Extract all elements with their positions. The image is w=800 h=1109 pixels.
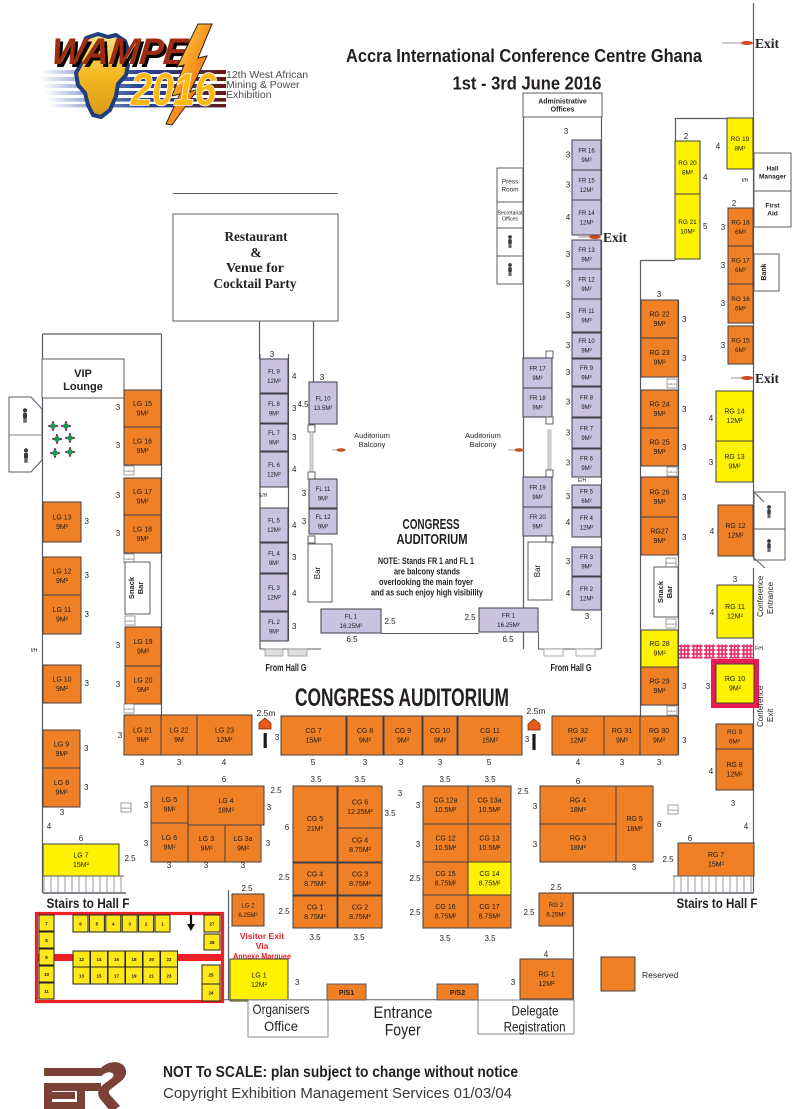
svg-text:CG 12: CG 12 — [435, 835, 455, 842]
svg-text:12M²: 12M² — [251, 982, 268, 989]
svg-text:25: 25 — [208, 973, 214, 978]
svg-text:5: 5 — [703, 222, 708, 231]
svg-text:9M²: 9M² — [237, 846, 250, 853]
svg-text:15: 15 — [96, 974, 102, 979]
svg-text:FR 14: FR 14 — [578, 211, 595, 217]
svg-text:FL 11: FL 11 — [316, 487, 331, 493]
svg-text:P/S1: P/S1 — [339, 990, 354, 997]
svg-text:LG 4: LG 4 — [218, 798, 233, 805]
svg-text:From Hall G: From Hall G — [266, 663, 307, 674]
svg-text:3: 3 — [657, 290, 662, 299]
svg-text:3: 3 — [533, 802, 538, 811]
svg-text:CG 4: CG 4 — [352, 837, 368, 844]
svg-text:3: 3 — [399, 758, 404, 767]
svg-text:9M²: 9M² — [581, 158, 591, 164]
svg-text:3: 3 — [275, 733, 280, 742]
svg-text:FR 16: FR 16 — [578, 148, 595, 154]
svg-text:VIP: VIP — [74, 368, 92, 380]
svg-text:8.75M²: 8.75M² — [479, 914, 501, 921]
svg-text:22: 22 — [166, 957, 172, 962]
svg-text:3: 3 — [116, 491, 121, 500]
svg-text:CG 5: CG 5 — [307, 816, 323, 823]
svg-text:are balcony stands: are balcony stands — [394, 567, 460, 577]
svg-text:2: 2 — [732, 199, 737, 208]
svg-text:3: 3 — [620, 758, 625, 767]
svg-text:LG 12: LG 12 — [52, 568, 71, 575]
svg-text:Snack: Snack — [127, 576, 136, 599]
svg-text:3: 3 — [566, 557, 571, 566]
svg-text:4: 4 — [576, 758, 581, 767]
svg-text:2.5: 2.5 — [409, 908, 421, 917]
svg-text:Lounge: Lounge — [63, 381, 103, 393]
svg-text:2.5: 2.5 — [662, 855, 674, 864]
svg-text:RG 23: RG 23 — [649, 350, 669, 357]
svg-text:12M²: 12M² — [580, 597, 594, 603]
svg-text:Accra International Conference: Accra International Conference Centre Gh… — [346, 45, 703, 66]
svg-text:9M²: 9M² — [55, 751, 68, 758]
svg-text:3: 3 — [167, 861, 172, 870]
svg-text:3: 3 — [682, 443, 687, 452]
svg-text:First: First — [765, 203, 780, 210]
svg-text:9M²: 9M² — [581, 376, 591, 382]
svg-text:FR 13: FR 13 — [578, 248, 595, 254]
svg-text:CONGRESS AUDITORIUM: CONGRESS AUDITORIUM — [295, 684, 509, 712]
svg-text:4: 4 — [566, 518, 571, 527]
svg-text:2.5m: 2.5m — [257, 708, 276, 718]
svg-text:RG 21: RG 21 — [678, 219, 697, 226]
svg-text:18M²: 18M² — [627, 826, 644, 833]
svg-text:3: 3 — [721, 223, 726, 232]
svg-text:LG 21: LG 21 — [133, 727, 152, 734]
svg-text:15M²: 15M² — [73, 862, 90, 869]
svg-text:LG 7: LG 7 — [73, 852, 88, 859]
svg-text:3: 3 — [721, 261, 726, 270]
svg-text:Venue for: Venue for — [226, 260, 284, 275]
svg-text:Bar: Bar — [136, 582, 145, 595]
svg-text:RG 17: RG 17 — [731, 257, 750, 264]
svg-text:Exit: Exit — [755, 36, 780, 51]
svg-text:From Hall G: From Hall G — [551, 663, 592, 674]
svg-text:17: 17 — [114, 974, 120, 979]
svg-text:and as such enjoy high visibil: and as such enjoy high visibility — [371, 588, 483, 598]
svg-text:CG 3: CG 3 — [352, 871, 368, 878]
svg-text:RG 12: RG 12 — [725, 523, 745, 530]
svg-text:RG 32: RG 32 — [568, 728, 588, 735]
svg-text:4: 4 — [710, 608, 715, 617]
svg-text:FL 12: FL 12 — [315, 515, 331, 521]
svg-text:CG 4: CG 4 — [307, 871, 323, 878]
svg-text:LG 8: LG 8 — [54, 780, 69, 787]
svg-text:3: 3 — [566, 429, 571, 438]
svg-text:10.5M²: 10.5M² — [435, 807, 457, 814]
svg-text:LG 10: LG 10 — [52, 676, 71, 683]
svg-text:9M²: 9M² — [136, 737, 149, 744]
svg-text:Exit: Exit — [755, 371, 780, 386]
svg-text:CG 13: CG 13 — [479, 835, 499, 842]
svg-text:4: 4 — [544, 950, 549, 959]
svg-text:Offices: Offices — [502, 217, 518, 223]
svg-text:3: 3 — [85, 517, 90, 526]
svg-text:21M²: 21M² — [307, 826, 324, 833]
svg-text:3: 3 — [416, 840, 421, 849]
svg-text:F/H: F/H — [755, 646, 763, 652]
svg-text:3: 3 — [363, 758, 368, 767]
svg-text:9M²: 9M² — [56, 524, 69, 531]
svg-text:LG 5: LG 5 — [162, 797, 177, 804]
svg-text:3: 3 — [706, 682, 711, 691]
svg-text:overlooking the main foyer: overlooking the main foyer — [379, 577, 473, 587]
svg-text:Organisers: Organisers — [253, 1001, 310, 1017]
svg-text:3: 3 — [733, 575, 738, 584]
svg-text:3: 3 — [566, 492, 571, 501]
svg-text:FR 4: FR 4 — [580, 516, 594, 522]
svg-text:3: 3 — [682, 682, 687, 691]
svg-text:6M²: 6M² — [735, 267, 746, 274]
svg-text:RG 1: RG 1 — [538, 971, 554, 978]
svg-text:FR 20: FR 20 — [529, 515, 546, 521]
svg-text:9M²: 9M² — [653, 651, 666, 658]
svg-text:9M²: 9M² — [532, 525, 542, 531]
svg-text:12M²: 12M² — [580, 221, 594, 227]
svg-text:3.5: 3.5 — [354, 775, 366, 784]
svg-text:RG 22: RG 22 — [649, 311, 669, 318]
svg-text:FR 12: FR 12 — [578, 277, 595, 283]
svg-text:9M²: 9M² — [581, 319, 591, 325]
svg-text:12M²: 12M² — [727, 772, 744, 779]
svg-text:Aid: Aid — [767, 211, 778, 218]
svg-text:4: 4 — [222, 758, 227, 767]
svg-text:12: 12 — [79, 957, 85, 962]
svg-text:18M²: 18M² — [570, 807, 587, 814]
svg-text:RG 25: RG 25 — [649, 439, 669, 446]
svg-text:RG27: RG27 — [650, 528, 668, 535]
svg-text:9M²: 9M² — [581, 405, 591, 411]
svg-text:3: 3 — [292, 404, 297, 413]
svg-text:RG 18: RG 18 — [731, 219, 750, 226]
svg-text:4: 4 — [566, 589, 571, 598]
svg-text:Restaurant: Restaurant — [225, 229, 288, 244]
svg-text:9M²: 9M² — [136, 411, 149, 418]
svg-text:E/H: E/H — [578, 478, 587, 484]
svg-text:10M²: 10M² — [680, 229, 695, 236]
svg-text:Bank: Bank — [761, 263, 768, 280]
svg-text:P/S2: P/S2 — [450, 990, 465, 997]
svg-text:3: 3 — [267, 803, 272, 812]
svg-text:8M²: 8M² — [734, 146, 745, 153]
svg-text:f/H: f/H — [742, 178, 749, 184]
svg-text:23: 23 — [166, 974, 172, 979]
svg-text:12M²: 12M² — [217, 737, 234, 744]
svg-text:2.5: 2.5 — [550, 883, 562, 892]
svg-text:FL 5: FL 5 — [268, 518, 280, 524]
svg-text:6.5: 6.5 — [502, 635, 514, 644]
svg-text:5: 5 — [311, 758, 316, 767]
svg-text:LG 2: LG 2 — [241, 902, 255, 909]
svg-text:FR 19: FR 19 — [529, 485, 546, 491]
svg-text:3: 3 — [566, 459, 571, 468]
svg-text:FL 1: FL 1 — [345, 613, 358, 620]
svg-text:14: 14 — [96, 957, 102, 962]
svg-text:9M²: 9M² — [653, 538, 666, 545]
svg-text:2.5: 2.5 — [270, 786, 282, 795]
svg-text:FL 9: FL 9 — [268, 369, 280, 375]
svg-text:CG 15: CG 15 — [435, 871, 455, 878]
svg-text:12M²: 12M² — [267, 528, 281, 534]
svg-text:9M²: 9M² — [581, 287, 591, 293]
svg-text:4: 4 — [566, 213, 571, 222]
svg-text:4: 4 — [716, 142, 721, 151]
svg-text:9M²: 9M² — [269, 412, 279, 418]
svg-text:E/H: E/H — [259, 493, 268, 499]
svg-text:10: 10 — [44, 972, 50, 977]
svg-text:FR 6: FR 6 — [580, 456, 594, 462]
svg-text:4: 4 — [744, 822, 749, 831]
svg-text:3: 3 — [84, 744, 89, 753]
svg-text:24: 24 — [208, 991, 214, 996]
svg-text:3: 3 — [118, 731, 123, 740]
svg-text:6M²: 6M² — [729, 739, 740, 746]
svg-text:6: 6 — [222, 775, 227, 784]
svg-text:9M²: 9M² — [318, 497, 328, 503]
svg-text:4: 4 — [709, 767, 714, 776]
svg-text:Foyer: Foyer — [385, 1021, 421, 1040]
svg-text:9M²: 9M² — [136, 448, 149, 455]
svg-text:9M²: 9M² — [136, 499, 149, 506]
svg-text:3: 3 — [438, 758, 443, 767]
svg-text:9M²: 9M² — [581, 466, 591, 472]
svg-text:Exhibition: Exhibition — [226, 89, 272, 101]
svg-text:9M²: 9M² — [163, 845, 176, 852]
svg-text:3: 3 — [302, 517, 307, 526]
svg-text:LG 18: LG 18 — [133, 526, 152, 533]
svg-text:Bar: Bar — [665, 586, 674, 599]
svg-text:3: 3 — [292, 553, 297, 562]
svg-text:3: 3 — [566, 250, 571, 259]
svg-text:3: 3 — [721, 299, 726, 308]
svg-text:9M²: 9M² — [269, 630, 279, 636]
svg-text:3: 3 — [682, 315, 687, 324]
svg-text:6M²: 6M² — [581, 499, 591, 505]
svg-text:FR 18: FR 18 — [529, 396, 546, 402]
svg-text:3: 3 — [292, 433, 297, 442]
svg-text:2.5: 2.5 — [409, 874, 421, 883]
svg-text:LG 16: LG 16 — [133, 438, 152, 445]
svg-text:CG 13a: CG 13a — [477, 797, 501, 804]
svg-text:15M²: 15M² — [482, 738, 499, 745]
svg-text:Copyright Exhibition Managemen: Copyright Exhibition Management Services… — [163, 1085, 512, 1102]
svg-text:NOT To SCALE: plan subject to: NOT To SCALE: plan subject to change wit… — [163, 1064, 518, 1081]
svg-text:2.5: 2.5 — [278, 907, 290, 916]
svg-text:6: 6 — [79, 834, 84, 843]
svg-text:Column: Column — [125, 707, 134, 711]
svg-text:9M²: 9M² — [729, 686, 742, 693]
svg-text:CG 7: CG 7 — [305, 728, 321, 735]
svg-text:Auditorium: Auditorium — [354, 431, 390, 440]
svg-text:12M²: 12M² — [539, 981, 556, 988]
svg-text:9M: 9M — [174, 737, 184, 744]
svg-text:LG 15: LG 15 — [133, 401, 152, 408]
svg-text:Visitor Exit: Visitor Exit — [240, 931, 284, 941]
svg-text:FR 17: FR 17 — [529, 366, 546, 372]
svg-text:3: 3 — [632, 863, 637, 872]
svg-text:2.5: 2.5 — [384, 617, 396, 626]
svg-text:8.75M²: 8.75M² — [304, 881, 326, 888]
svg-text:CG 17: CG 17 — [479, 904, 499, 911]
svg-text:12M²: 12M² — [727, 614, 744, 621]
svg-text:Exit: Exit — [766, 708, 775, 722]
svg-text:FL 7: FL 7 — [268, 431, 280, 437]
svg-text:f/H: f/H — [31, 648, 38, 654]
svg-text:Column: Column — [667, 622, 676, 626]
svg-text:4: 4 — [710, 527, 715, 536]
svg-text:13: 13 — [79, 974, 85, 979]
svg-text:3: 3 — [140, 758, 145, 767]
svg-text:6: 6 — [657, 820, 662, 829]
svg-text:3: 3 — [525, 735, 530, 744]
svg-text:6M²: 6M² — [735, 306, 746, 313]
svg-text:3: 3 — [116, 680, 121, 689]
svg-text:LG 23: LG 23 — [215, 727, 234, 734]
svg-text:FL 6: FL 6 — [268, 463, 280, 469]
svg-text:3: 3 — [682, 533, 687, 542]
svg-text:CG 10: CG 10 — [430, 728, 450, 735]
svg-text:Stairs to Hall F: Stairs to Hall F — [47, 895, 130, 911]
svg-text:Column: Column — [668, 709, 677, 713]
svg-text:RG 29: RG 29 — [649, 678, 669, 685]
svg-text:16.25M²: 16.25M² — [497, 622, 520, 629]
svg-text:CG 8: CG 8 — [357, 728, 373, 735]
svg-text:9M²: 9M² — [653, 321, 666, 328]
svg-text:9M²: 9M² — [137, 687, 150, 694]
svg-text:8.75M²: 8.75M² — [479, 881, 501, 888]
svg-text:9M²: 9M² — [653, 449, 666, 456]
svg-text:4: 4 — [292, 372, 297, 381]
svg-text:CG 9: CG 9 — [395, 728, 411, 735]
svg-text:6.5: 6.5 — [346, 635, 358, 644]
svg-text:3: 3 — [566, 181, 571, 190]
svg-text:12M²: 12M² — [728, 533, 745, 540]
svg-text:18M²: 18M² — [218, 808, 235, 815]
svg-text:3: 3 — [721, 341, 726, 350]
svg-text:RG 8: RG 8 — [726, 762, 742, 769]
svg-text:6M²: 6M² — [735, 347, 746, 354]
svg-text:5: 5 — [487, 758, 492, 767]
svg-text:LG 20: LG 20 — [133, 677, 152, 684]
svg-text:3: 3 — [292, 622, 297, 631]
svg-text:3: 3 — [682, 493, 687, 502]
svg-text:CG 1: CG 1 — [307, 904, 323, 911]
svg-text:9M²: 9M² — [269, 441, 279, 447]
svg-text:3: 3 — [116, 403, 121, 412]
svg-text:FL 3: FL 3 — [268, 586, 280, 592]
svg-text:3: 3 — [60, 808, 65, 817]
svg-text:26: 26 — [209, 940, 215, 945]
svg-text:9M²: 9M² — [653, 499, 666, 506]
svg-text:Snack: Snack — [656, 580, 665, 603]
svg-text:LG 3a: LG 3a — [233, 836, 252, 843]
svg-text:RG 16: RG 16 — [731, 296, 750, 303]
svg-text:CG 14: CG 14 — [479, 871, 499, 878]
svg-text:Conference: Conference — [756, 575, 765, 617]
svg-text:CG 12a: CG 12a — [433, 797, 457, 804]
svg-text:3: 3 — [585, 612, 590, 621]
svg-text:9M²: 9M² — [200, 846, 213, 853]
svg-text:3: 3 — [533, 840, 538, 849]
svg-text:9M²: 9M² — [653, 738, 666, 745]
svg-text:Bar: Bar — [313, 566, 322, 579]
svg-text:9M²: 9M² — [269, 561, 279, 567]
svg-text:9M²: 9M² — [653, 360, 666, 367]
svg-text:FL 4: FL 4 — [268, 551, 280, 557]
svg-text:12M²: 12M² — [727, 418, 744, 425]
svg-text:10.5M²: 10.5M² — [435, 845, 457, 852]
svg-text:3: 3 — [566, 398, 571, 407]
svg-text:Via: Via — [256, 941, 269, 951]
svg-text:LG 13: LG 13 — [52, 514, 71, 521]
svg-text:20: 20 — [149, 957, 155, 962]
svg-text:16: 16 — [114, 957, 120, 962]
svg-text:FR 5: FR 5 — [580, 489, 594, 495]
svg-text:3.5: 3.5 — [484, 934, 496, 943]
svg-text:9M²: 9M² — [581, 258, 591, 264]
svg-text:Offices: Offices — [551, 107, 575, 114]
svg-text:Balcony: Balcony — [470, 440, 497, 449]
svg-text:9M²: 9M² — [137, 649, 150, 656]
svg-text:8.75M²: 8.75M² — [304, 914, 326, 921]
svg-text:RG 13: RG 13 — [724, 454, 744, 461]
svg-text:FL 10: FL 10 — [315, 396, 331, 402]
svg-text:9M²: 9M² — [728, 464, 741, 471]
svg-text:6: 6 — [576, 777, 581, 786]
svg-text:RG 7: RG 7 — [708, 852, 724, 859]
svg-text:3: 3 — [566, 151, 571, 160]
svg-text:Entrance: Entrance — [766, 581, 775, 614]
svg-text:2.5: 2.5 — [517, 787, 529, 796]
svg-text:RG 5: RG 5 — [626, 816, 642, 823]
svg-text:RG 20: RG 20 — [678, 160, 697, 167]
svg-text:FR 9: FR 9 — [580, 366, 594, 372]
svg-text:3: 3 — [731, 799, 736, 808]
svg-text:Administrative: Administrative — [538, 99, 587, 106]
svg-text:2.5m: 2.5m — [527, 706, 546, 716]
svg-text:13.5M²: 13.5M² — [314, 406, 333, 412]
svg-text:2.5: 2.5 — [124, 854, 136, 863]
svg-text:RG 4: RG 4 — [570, 797, 586, 804]
svg-text:10.5M²: 10.5M² — [479, 845, 501, 852]
svg-text:Column: Column — [669, 808, 678, 812]
svg-text:Column: Column — [667, 561, 676, 565]
svg-text:CG 2: CG 2 — [352, 904, 368, 911]
svg-text:RG 24: RG 24 — [649, 401, 669, 408]
svg-text:12M²: 12M² — [580, 526, 594, 532]
svg-text:3: 3 — [204, 861, 209, 870]
svg-text:3: 3 — [682, 354, 687, 363]
svg-text:AUDITORIUM: AUDITORIUM — [397, 531, 468, 548]
svg-text:3: 3 — [682, 736, 687, 745]
svg-text:Auditorium: Auditorium — [465, 431, 501, 440]
svg-text:18: 18 — [131, 957, 137, 962]
svg-text:18M²: 18M² — [570, 845, 587, 852]
svg-text:FR 15: FR 15 — [578, 178, 595, 184]
svg-text:3: 3 — [116, 529, 121, 538]
svg-text:LG 22: LG 22 — [169, 727, 188, 734]
svg-text:RG 19: RG 19 — [731, 136, 750, 143]
svg-text:12M²: 12M² — [580, 188, 594, 194]
svg-text:3: 3 — [84, 783, 89, 792]
svg-text:3: 3 — [682, 405, 687, 414]
svg-text:6: 6 — [688, 834, 693, 843]
svg-text:3: 3 — [416, 801, 421, 810]
